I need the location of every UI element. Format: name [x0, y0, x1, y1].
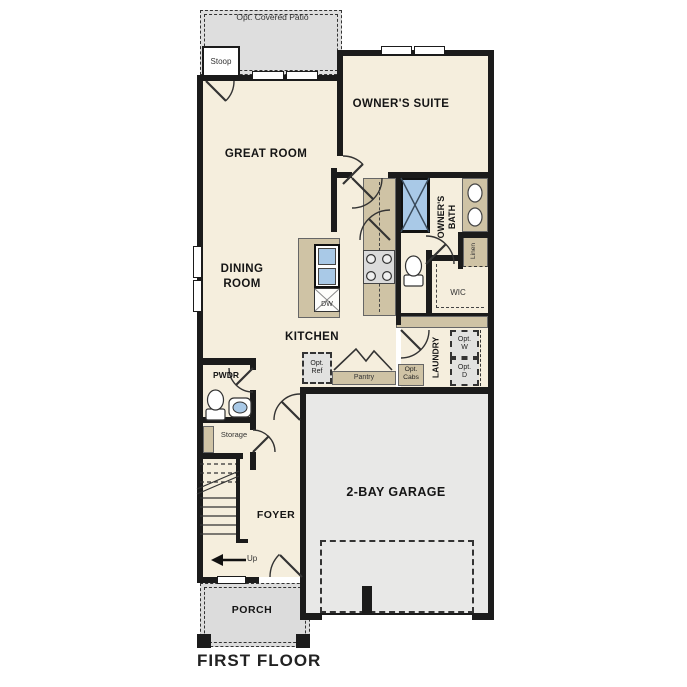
garage-entry-leaf: [282, 402, 300, 420]
pwdr-label: PWDR: [206, 370, 246, 380]
bath-door-leaf: [369, 219, 390, 240]
pantry-bifold-doors: [334, 349, 392, 370]
laundry-door-leaf: [401, 330, 421, 350]
great-room-label: GREAT ROOM: [221, 147, 311, 162]
stoop-label: Stoop: [203, 57, 239, 66]
range-burners: [367, 255, 392, 281]
foyer-label: FOYER: [241, 509, 311, 521]
hall-door-leaf-1: [352, 178, 373, 199]
pwdr-toilet: [206, 390, 225, 420]
linen-label: Linen: [470, 236, 480, 266]
laundry-label: LAUNDRY: [431, 328, 444, 388]
dining-room-label: DINING ROOM: [206, 262, 278, 292]
opt-cabs-label: Opt. Cabs: [398, 366, 424, 382]
garage-label: 2-BAY GARAGE: [346, 484, 446, 501]
wic-label: WIC: [443, 288, 473, 297]
up-arrow: [211, 554, 246, 566]
dw-label: DW: [314, 301, 340, 308]
pantry-label: Pantry: [332, 374, 396, 381]
owners-suite-label: OWNER'S SUITE: [351, 97, 451, 112]
stoop-door-arc: [226, 81, 234, 101]
suite-door-arc: [343, 156, 363, 164]
storage-label: Storage: [214, 430, 254, 439]
wic-door-leaf: [426, 244, 446, 264]
stoop-door-leaf: [206, 81, 226, 101]
patio-label: Opt. Covered Patio: [210, 13, 335, 22]
stairs: [197, 464, 239, 534]
floor-plan: Opt. Ref Opt. W Opt. D: [0, 0, 687, 687]
owners-bath-label: OWNER'S BATH: [436, 187, 458, 247]
front-door-arc: [270, 554, 279, 577]
porch-label: PORCH: [207, 604, 297, 616]
storage-door-leaf: [253, 436, 269, 452]
kitchen-label: KITCHEN: [272, 330, 352, 345]
up-label: Up: [247, 554, 267, 563]
bath-toilet: [404, 256, 423, 286]
vanity-sinks: [468, 184, 482, 226]
floor-title: FIRST FLOOR: [197, 651, 397, 671]
front-door-leaf: [280, 555, 302, 577]
shower-x: [401, 178, 429, 232]
suite-door-leaf: [343, 164, 363, 184]
pwdr-sink: [229, 398, 251, 417]
